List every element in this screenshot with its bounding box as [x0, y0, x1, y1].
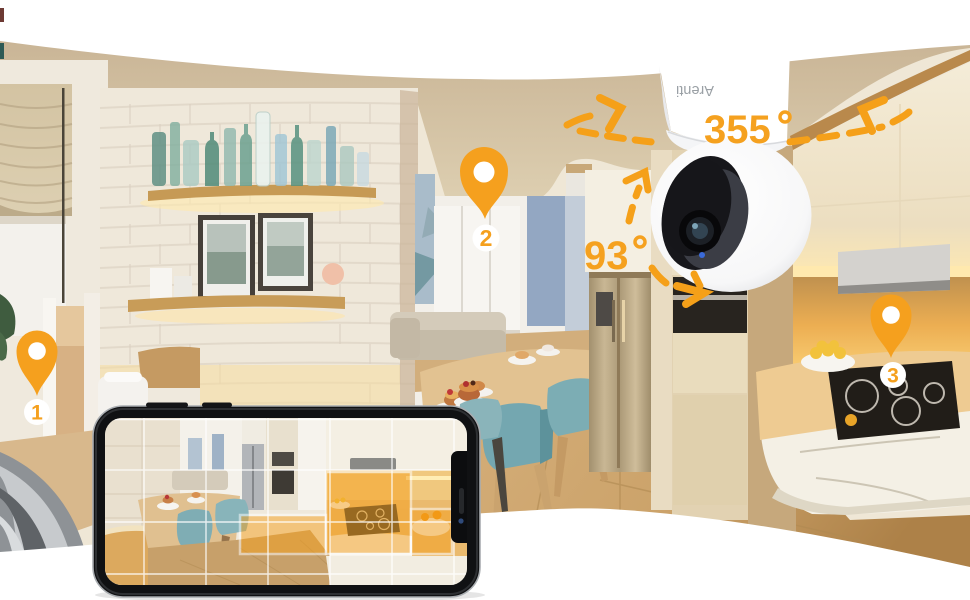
- svg-text:355: 355: [704, 108, 771, 152]
- svg-text:1: 1: [31, 402, 43, 425]
- svg-text:2: 2: [480, 225, 493, 251]
- svg-text:93: 93: [584, 234, 629, 278]
- svg-text:Arenti: Arenti: [676, 82, 714, 98]
- svg-text:3: 3: [887, 365, 899, 388]
